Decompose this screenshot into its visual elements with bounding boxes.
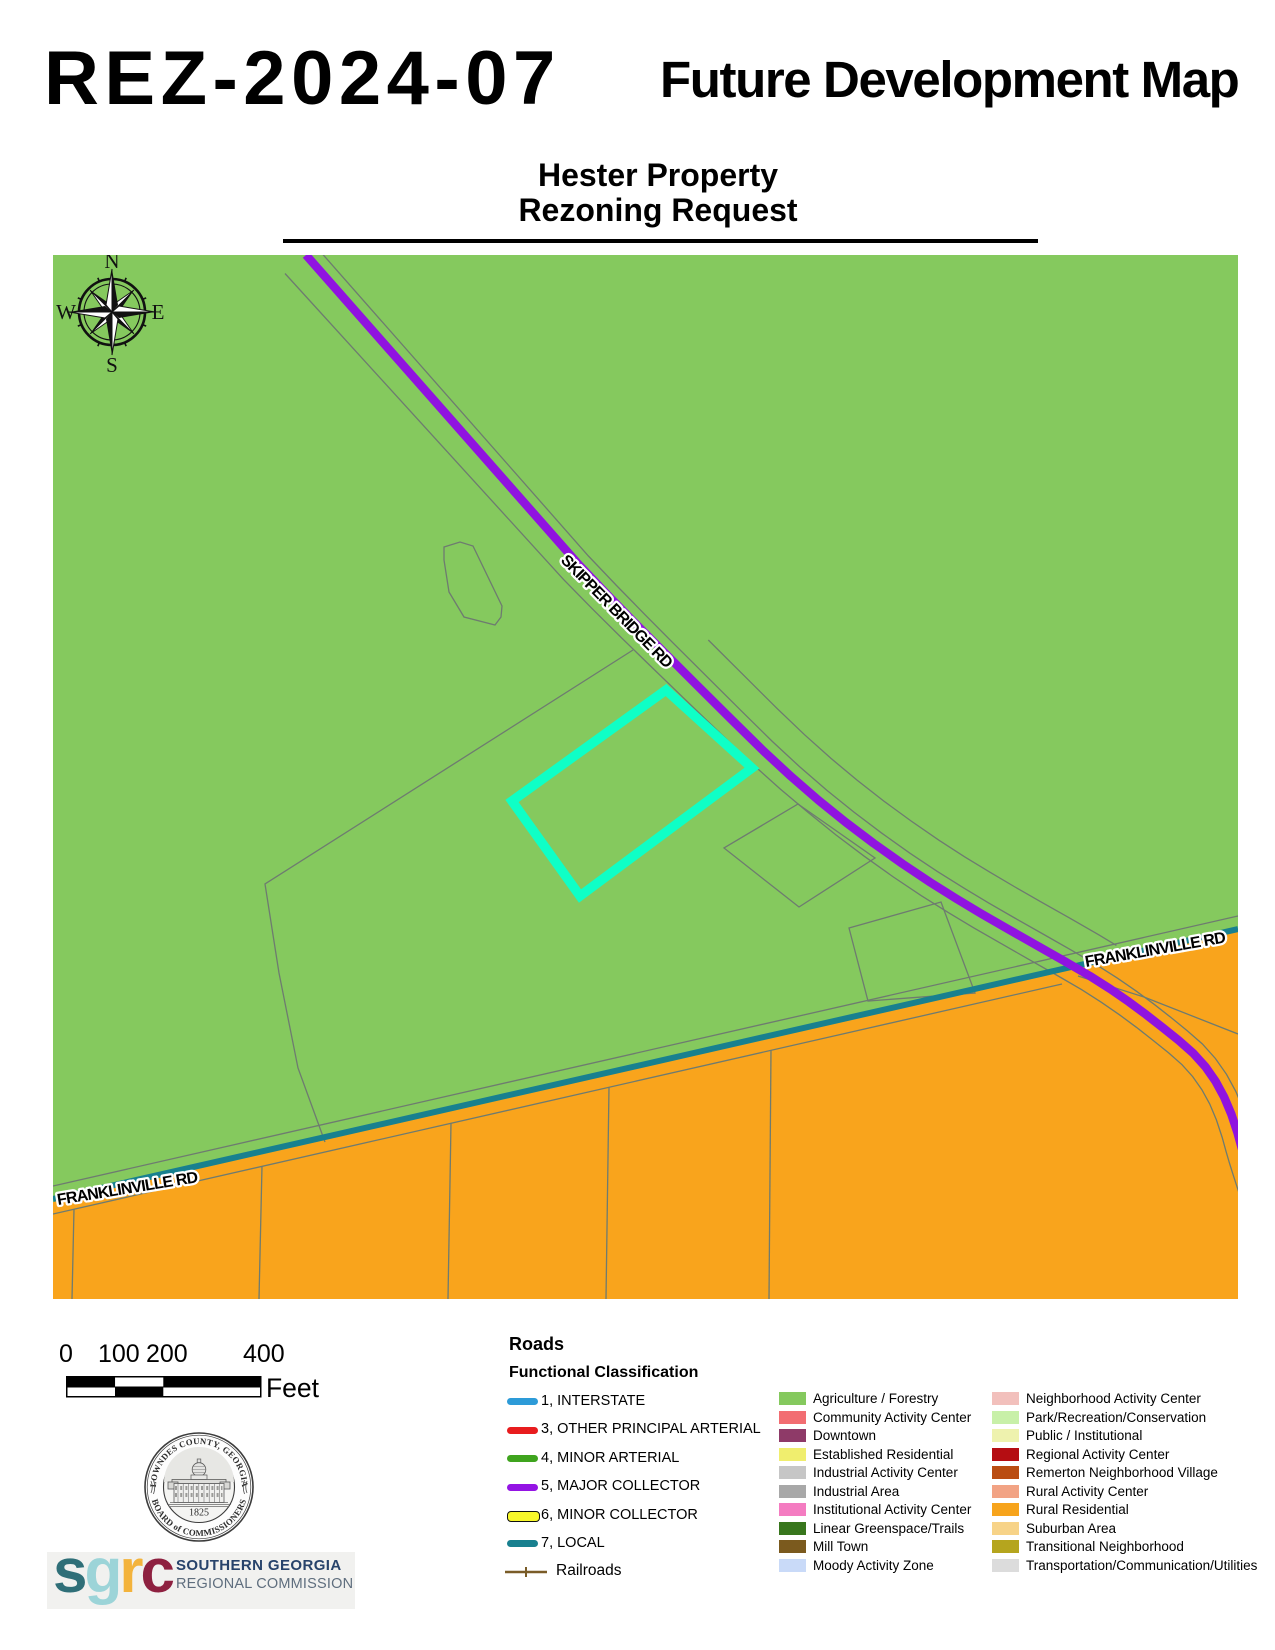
- svg-text:S: S: [106, 353, 118, 377]
- svg-text:W: W: [56, 300, 76, 324]
- svg-text:E: E: [152, 300, 165, 324]
- svg-text:1825: 1825: [189, 1508, 209, 1519]
- svg-text:N: N: [104, 255, 119, 273]
